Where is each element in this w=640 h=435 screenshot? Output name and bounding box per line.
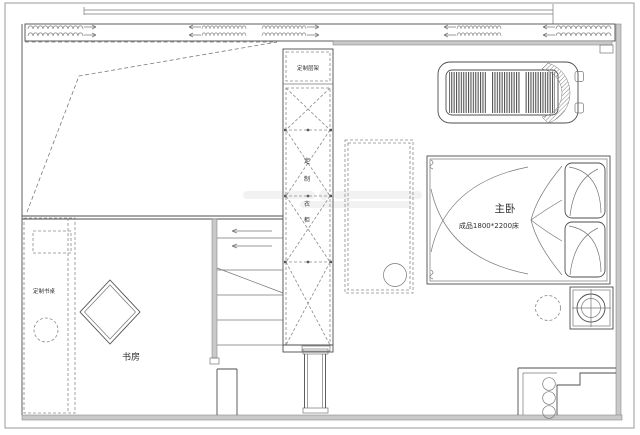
knee-wall: [22, 216, 283, 219]
svg-text:柜: 柜: [304, 216, 310, 224]
wall-corner-box: [600, 45, 613, 53]
master-bedroom-label: 主卧: [495, 202, 516, 215]
stair-wall-foot: [210, 358, 219, 364]
wall-right: [616, 24, 621, 416]
radiator-bracket: [575, 103, 584, 113]
wardrobe-column: 定制层架 定 制 衣 柜: [283, 49, 333, 352]
staircase: [210, 219, 283, 415]
stair-steps: [217, 229, 283, 345]
roof-outline-lines: [84, 4, 553, 24]
wardrobe-footer: [302, 346, 330, 351]
study-table: [80, 280, 140, 344]
step-post: [543, 378, 556, 391]
svg-text:定: 定: [304, 157, 310, 165]
stool-circle: [536, 296, 561, 321]
radiator: [438, 62, 584, 123]
insulation-symbols: [28, 25, 611, 37]
radiator-bracket: [575, 72, 584, 82]
master-bed: [427, 156, 610, 284]
floor-plan-screenshot: 定制层架 定 制 衣 柜: [0, 0, 640, 435]
bed-spec-label: 成品1800*2200床: [459, 221, 519, 230]
floor-plan-drawing: 定制层架 定 制 衣 柜: [0, 0, 640, 435]
stair-direction-arrow: [232, 244, 272, 248]
blanket-curves: [431, 166, 562, 275]
step-post: [543, 392, 556, 405]
study-label: 书房: [122, 351, 140, 363]
wall-bottom: [22, 415, 622, 420]
dresser-stool-circle: [384, 264, 407, 287]
door-frame: [303, 349, 328, 413]
stair-direction-arrow: [232, 229, 272, 233]
svg-text:制: 制: [304, 175, 310, 183]
washing-machine: [570, 287, 613, 329]
dresser: [345, 140, 413, 293]
custom-shelf-label: 定制层架: [297, 64, 320, 72]
stair-bottom-notch: [217, 369, 237, 415]
stair-wall: [212, 219, 217, 358]
sloped-ceiling-dashed-line: [25, 42, 277, 212]
image-border: [5, 3, 634, 428]
desk-stool-circle: [34, 318, 58, 342]
wall-fill-strip: [333, 41, 612, 45]
wardrobe-label-vertical: 定 制 衣 柜: [304, 157, 310, 224]
custom-desk-label: 定制书桌: [33, 287, 56, 295]
pillows: [565, 163, 605, 277]
desk-chair-box: [33, 231, 71, 253]
watermark: [243, 190, 422, 208]
radiator-fins: [449, 72, 555, 113]
corner-steps: [518, 368, 616, 418]
custom-desk-column: 定制书桌: [24, 218, 75, 413]
